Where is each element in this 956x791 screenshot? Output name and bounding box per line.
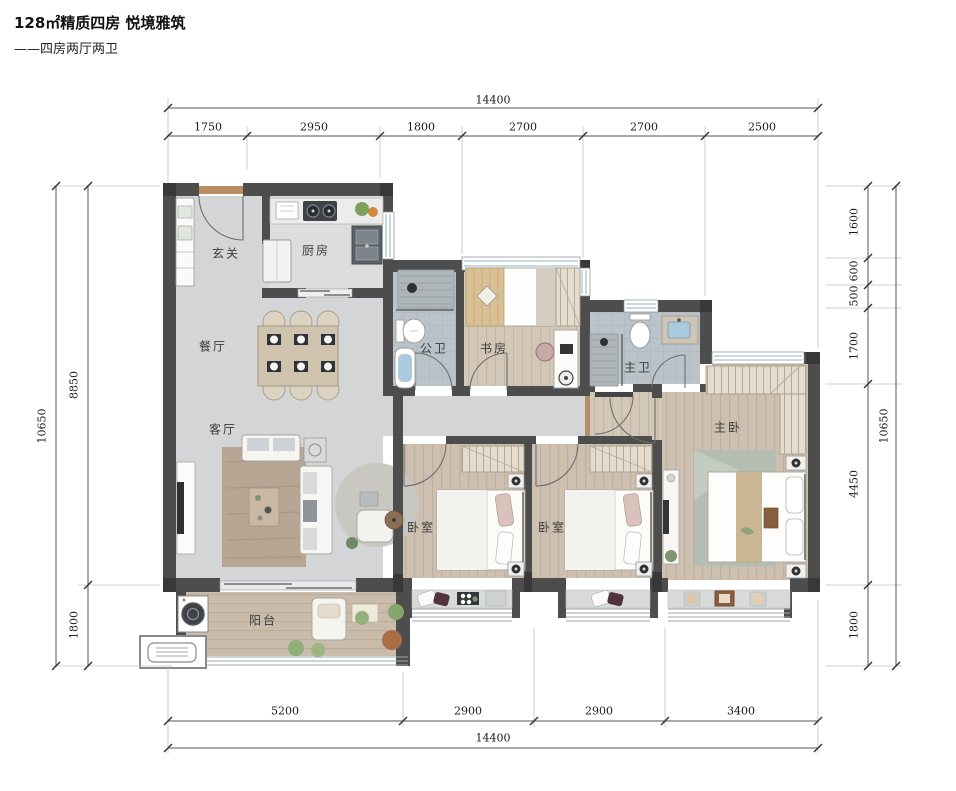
dim-top-seg5: 2700 xyxy=(630,121,658,134)
dim-left-seg1: 8850 xyxy=(68,371,81,399)
master-wardrobe xyxy=(706,366,806,394)
dim-right-seg6: 1800 xyxy=(848,611,861,639)
master-toilet-icon xyxy=(630,322,650,348)
dim-top-total: 14400 xyxy=(476,94,511,107)
room-label-bedroom1: 卧室 xyxy=(407,519,435,536)
balcony-railing xyxy=(178,657,408,665)
room-label-kitchen: 厨房 xyxy=(302,242,330,259)
floor-plant-icon xyxy=(346,537,358,549)
master-bath-window xyxy=(624,300,658,312)
room-label-master-bedroom: 主卧 xyxy=(714,419,742,436)
master-bedroom-window xyxy=(712,352,804,364)
vegetable-basket-icon xyxy=(355,202,369,216)
entry-furniture xyxy=(176,198,194,286)
room-label-guest-bath: 公卫 xyxy=(420,340,448,357)
sink-icon xyxy=(668,322,690,338)
dim-top-seg3: 1800 xyxy=(407,121,435,134)
balcony-sliding-door xyxy=(220,581,356,590)
dim-right-seg3: 500 xyxy=(848,286,861,307)
dim-bottom-seg4: 3400 xyxy=(727,705,755,718)
dim-bottom-total: 14400 xyxy=(476,732,511,745)
floorplan-page: 128㎡精质四房 悦境雅筑 ——四房两厅两卫 xyxy=(0,0,956,791)
dining-furniture xyxy=(258,311,339,400)
dim-top-seg6: 2500 xyxy=(748,121,776,134)
room-label-living: 客厅 xyxy=(209,421,237,438)
bay-windows xyxy=(412,590,790,621)
room-label-study: 书房 xyxy=(480,340,508,357)
bed-runner-accent xyxy=(764,508,778,528)
room-label-master-bath: 主卫 xyxy=(624,359,652,376)
tv-icon xyxy=(177,482,184,534)
plant-icon xyxy=(665,550,677,562)
dim-right-seg5: 4450 xyxy=(848,470,861,498)
room-label-dining: 餐厅 xyxy=(199,338,227,355)
side-table xyxy=(304,438,326,462)
ottoman xyxy=(360,492,378,506)
dim-left-seg2: 1800 xyxy=(68,611,81,639)
dim-right-seg1: 1600 xyxy=(848,208,861,236)
floorplan-drawing xyxy=(0,0,956,791)
dim-right-total: 10650 xyxy=(878,409,891,444)
room-label-bedroom2: 卧室 xyxy=(538,519,566,536)
dim-bottom-seg1: 5200 xyxy=(271,705,299,718)
laptop-icon xyxy=(560,344,573,354)
dim-top-seg2: 2950 xyxy=(300,121,328,134)
kitchen-window xyxy=(382,212,394,259)
coffee-table xyxy=(249,488,279,526)
dim-left-total: 10650 xyxy=(36,409,49,444)
room-label-balcony: 阳台 xyxy=(249,612,277,629)
room-label-entry: 玄关 xyxy=(212,245,240,262)
dim-right-seg2: 600 xyxy=(848,261,861,282)
dim-bottom-seg2: 2900 xyxy=(454,705,482,718)
ac-platform xyxy=(140,636,206,668)
dim-top-seg4: 2700 xyxy=(509,121,537,134)
desk-chair xyxy=(536,343,554,361)
dim-bottom-seg3: 2900 xyxy=(585,705,613,718)
plant-icon xyxy=(288,640,304,656)
dim-top-seg1: 1750 xyxy=(194,121,222,134)
dim-right-seg4: 1700 xyxy=(848,332,861,360)
kitchen-sliding-door xyxy=(298,289,352,297)
